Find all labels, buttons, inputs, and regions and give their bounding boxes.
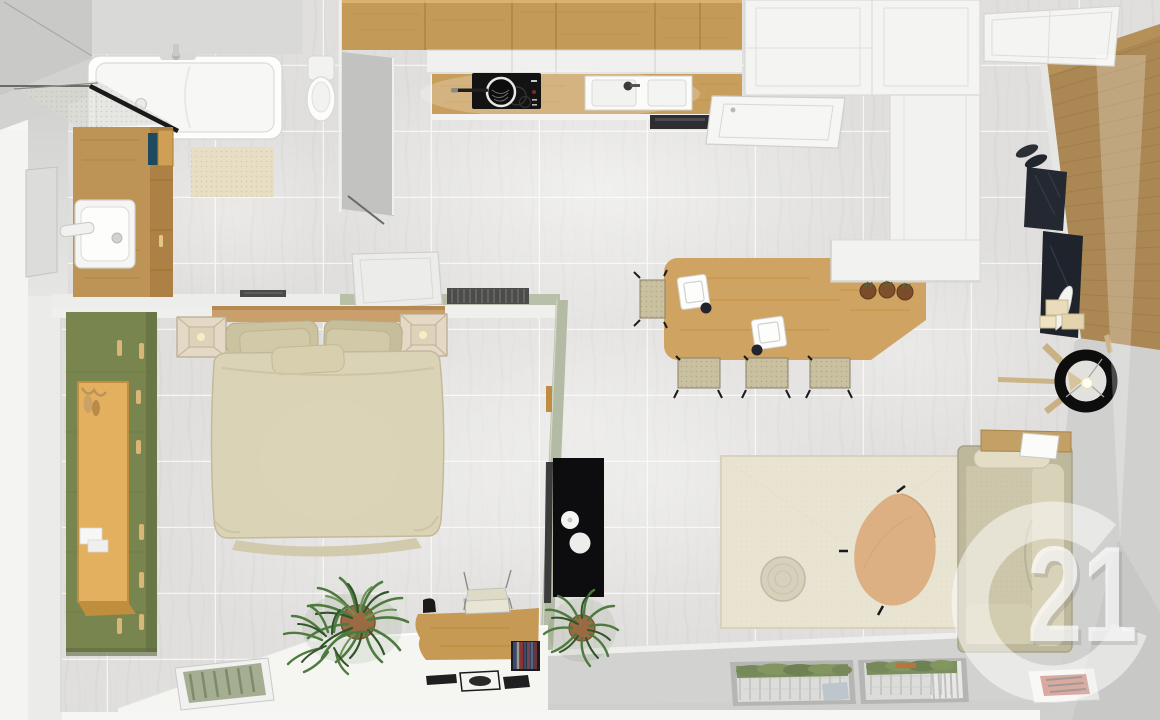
svg-text:21: 21 <box>1027 519 1137 671</box>
